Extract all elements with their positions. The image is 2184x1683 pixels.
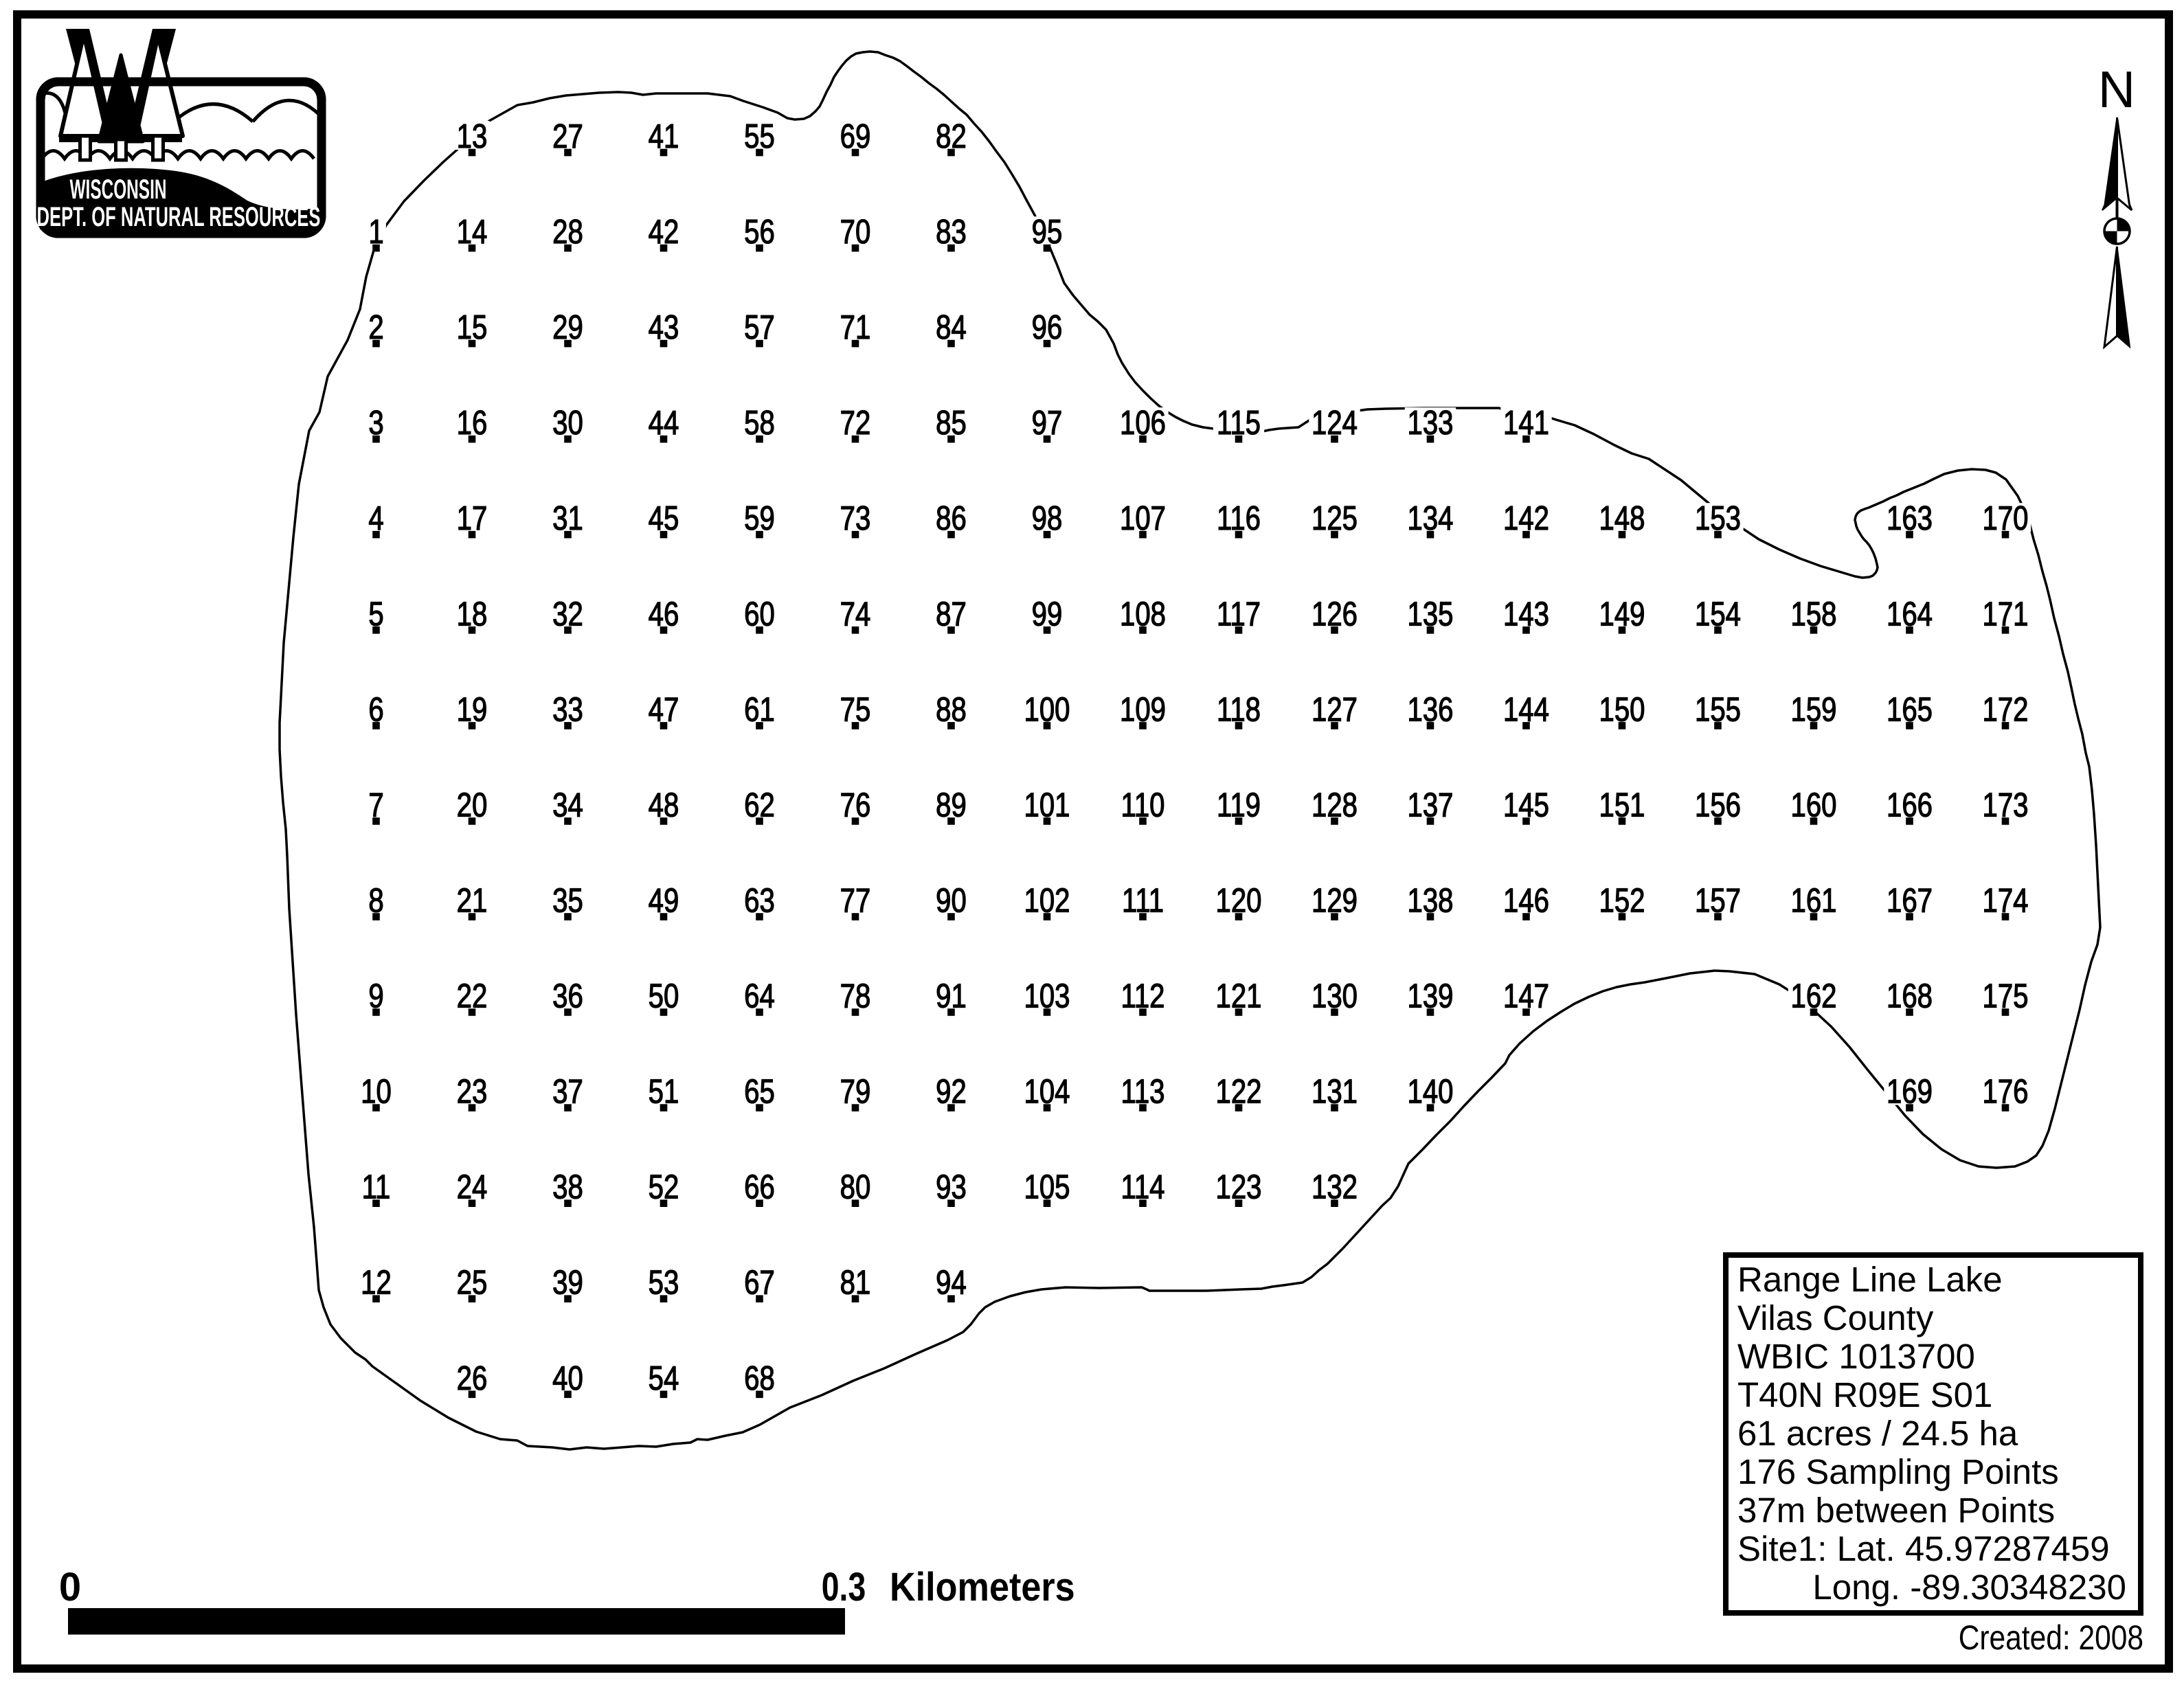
svg-text:0: 0 [59, 1565, 81, 1609]
svg-text:Kilometers: Kilometers [890, 1564, 1075, 1609]
svg-text:Long. -89.30348230: Long. -89.30348230 [1812, 1568, 2126, 1607]
svg-text:176 Sampling Points: 176 Sampling Points [1737, 1452, 2059, 1491]
svg-text:61 acres / 24.5 ha: 61 acres / 24.5 ha [1737, 1414, 2018, 1453]
svg-text:0.3: 0.3 [822, 1565, 866, 1609]
svg-text:WBIC 1013700: WBIC 1013700 [1737, 1337, 1975, 1376]
svg-text:Range Line Lake: Range Line Lake [1737, 1260, 2003, 1299]
svg-text:37m between Points: 37m between Points [1737, 1491, 2055, 1530]
svg-text:Vilas County: Vilas County [1737, 1298, 1934, 1337]
svg-text:DEPT. OF NATURAL RESOURCES: DEPT. OF NATURAL RESOURCES [37, 202, 321, 232]
svg-text:T40N R09E S01: T40N R09E S01 [1737, 1375, 1992, 1414]
svg-text:WISCONSIN: WISCONSIN [70, 174, 167, 205]
svg-text:Created: 2008: Created: 2008 [1959, 1618, 2143, 1657]
svg-text:N: N [2098, 60, 2135, 118]
svg-text:Site1: Lat. 45.97287459: Site1: Lat. 45.97287459 [1737, 1529, 2110, 1568]
